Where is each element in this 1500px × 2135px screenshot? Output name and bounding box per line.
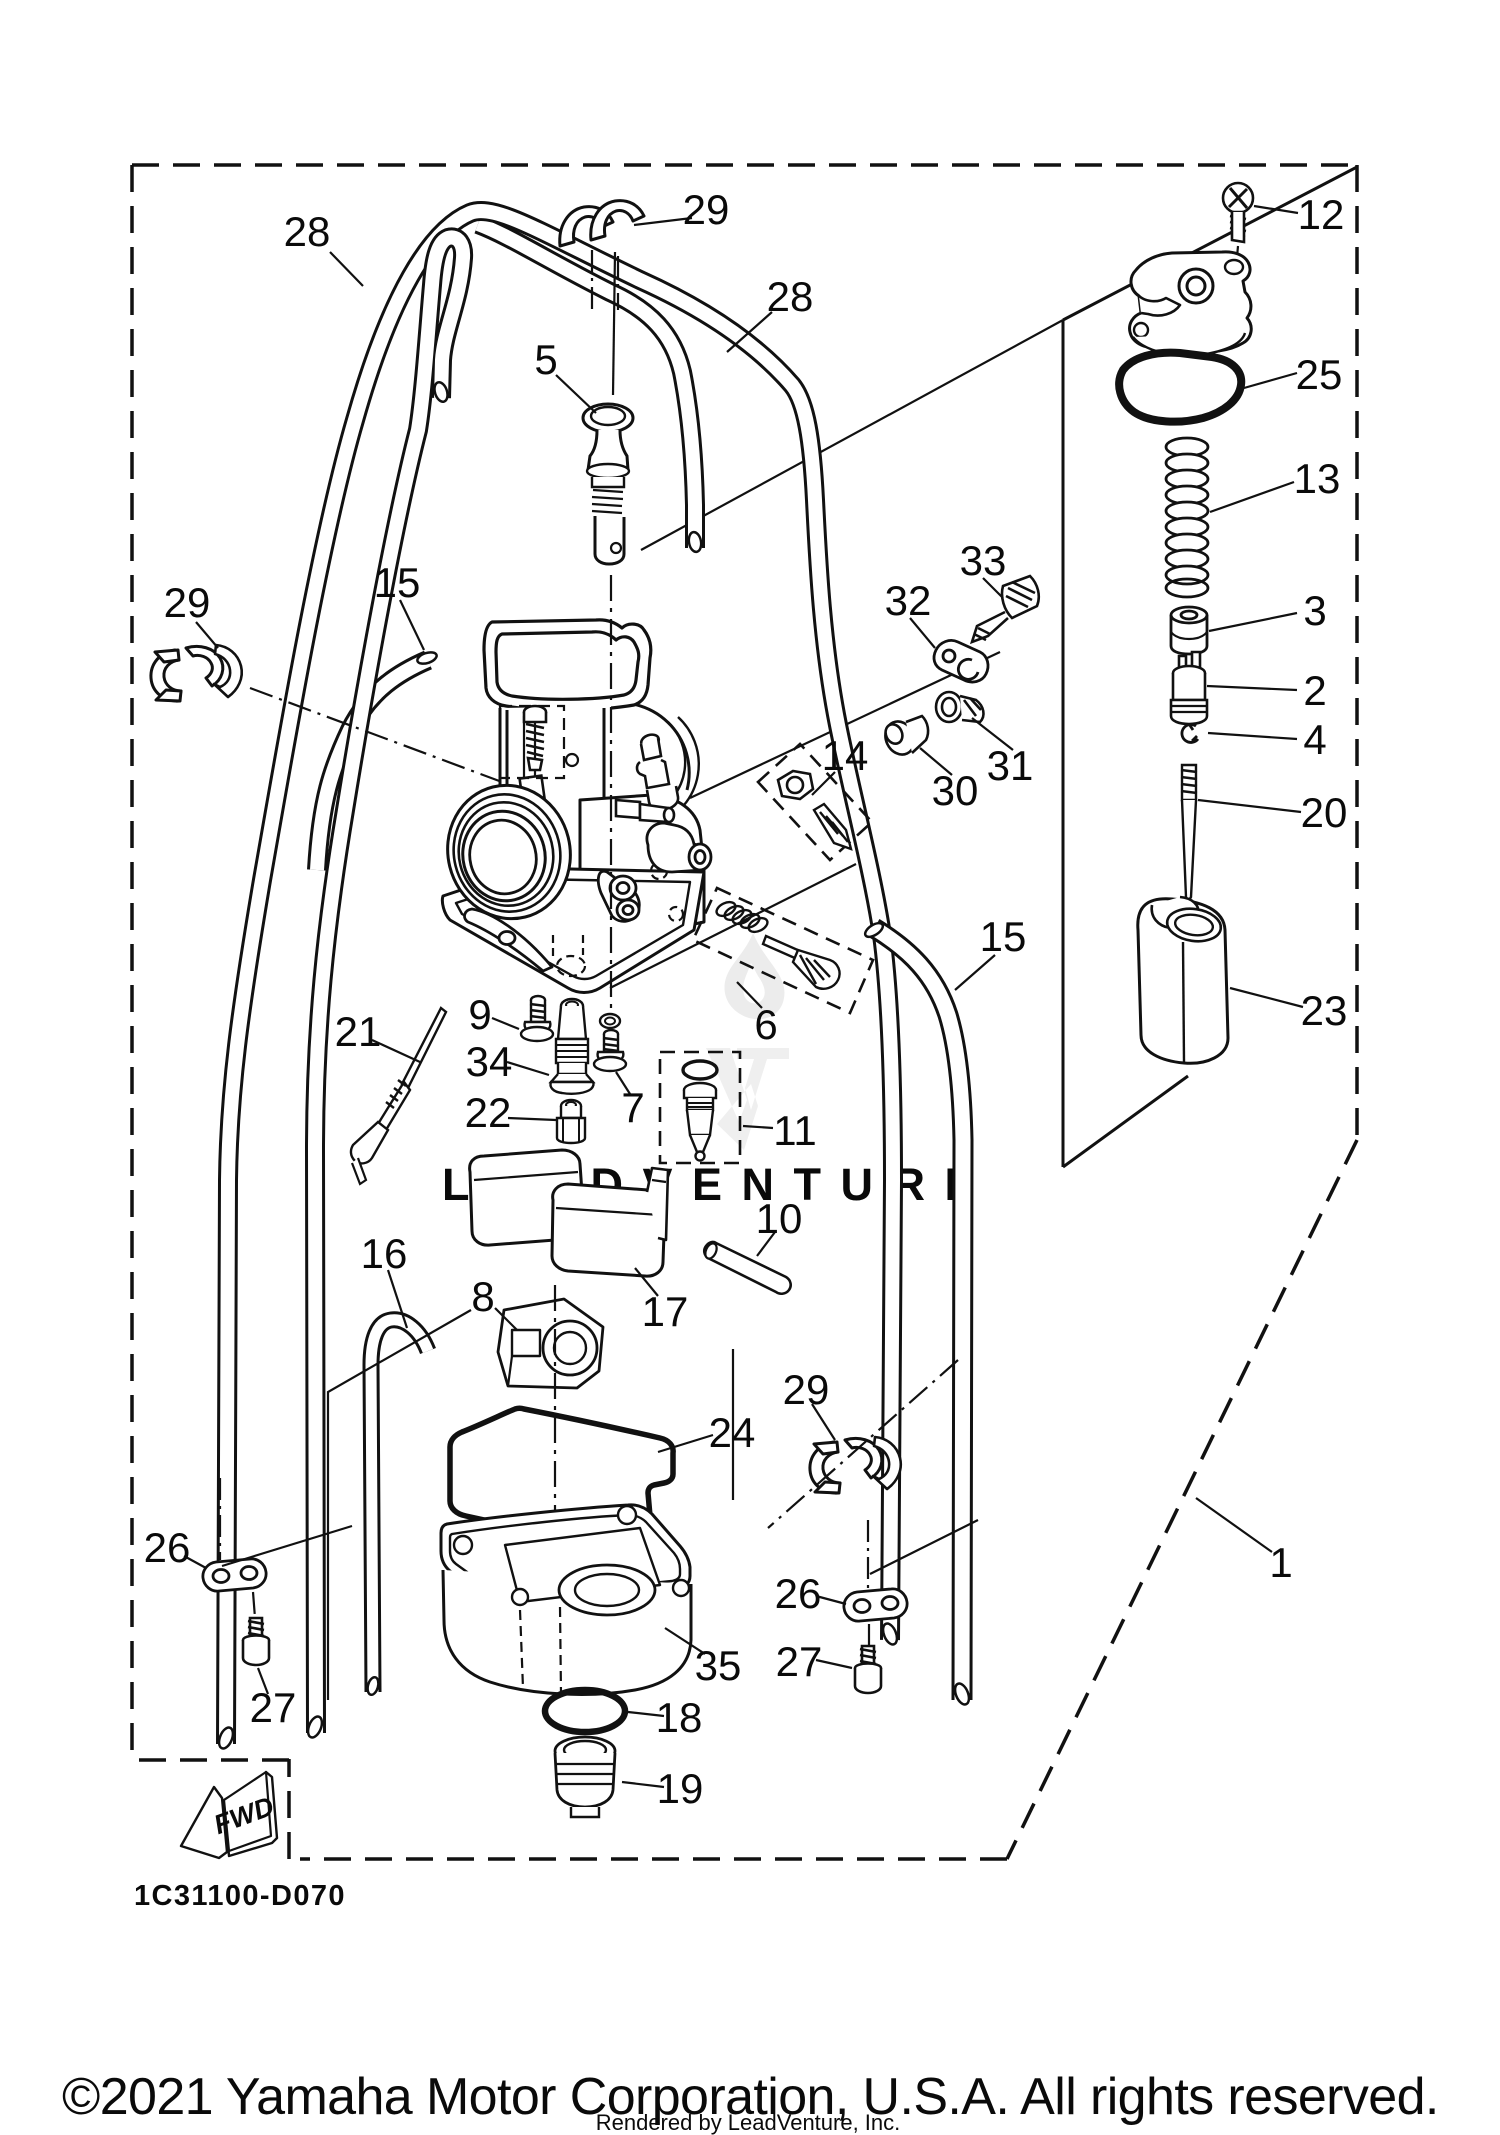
- svg-text:1: 1: [1269, 1539, 1292, 1586]
- svg-text:13: 13: [1294, 455, 1341, 502]
- svg-text:34: 34: [466, 1038, 513, 1085]
- svg-text:21: 21: [335, 1008, 382, 1055]
- svg-text:5: 5: [534, 336, 557, 383]
- svg-text:27: 27: [776, 1638, 823, 1685]
- svg-text:Rendered by LeadVenture, Inc.: Rendered by LeadVenture, Inc.: [596, 2110, 901, 2135]
- svg-text:32: 32: [885, 577, 932, 624]
- svg-text:11: 11: [773, 1107, 817, 1154]
- svg-text:14: 14: [822, 732, 869, 779]
- svg-text:23: 23: [1301, 987, 1348, 1034]
- svg-text:3: 3: [1303, 587, 1326, 634]
- svg-text:15: 15: [980, 913, 1027, 960]
- svg-text:26: 26: [144, 1524, 191, 1571]
- svg-text:19: 19: [657, 1765, 704, 1812]
- svg-text:33: 33: [960, 537, 1007, 584]
- svg-text:20: 20: [1301, 789, 1348, 836]
- svg-text:4: 4: [1303, 716, 1326, 763]
- svg-text:8: 8: [471, 1273, 494, 1320]
- svg-text:10: 10: [756, 1195, 803, 1242]
- svg-text:12: 12: [1298, 191, 1345, 238]
- svg-text:18: 18: [656, 1694, 703, 1741]
- svg-text:31: 31: [987, 742, 1034, 789]
- svg-text:28: 28: [284, 208, 331, 255]
- svg-text:9: 9: [468, 991, 491, 1038]
- svg-text:25: 25: [1296, 351, 1343, 398]
- svg-text:1C31100-D070: 1C31100-D070: [134, 1880, 346, 1912]
- svg-text:29: 29: [164, 579, 211, 626]
- svg-text:16: 16: [361, 1230, 408, 1277]
- svg-text:22: 22: [465, 1089, 512, 1136]
- svg-text:30: 30: [932, 767, 979, 814]
- svg-text:15: 15: [374, 559, 421, 606]
- svg-text:27: 27: [250, 1684, 297, 1731]
- svg-text:28: 28: [767, 273, 814, 320]
- svg-text:2: 2: [1303, 667, 1326, 714]
- svg-text:35: 35: [695, 1642, 742, 1689]
- svg-text:7: 7: [621, 1084, 644, 1131]
- svg-text:29: 29: [783, 1366, 830, 1413]
- svg-text:26: 26: [775, 1570, 822, 1617]
- svg-text:6: 6: [754, 1001, 777, 1048]
- svg-text:29: 29: [683, 186, 730, 233]
- svg-text:24: 24: [709, 1409, 756, 1456]
- svg-text:17: 17: [642, 1288, 689, 1335]
